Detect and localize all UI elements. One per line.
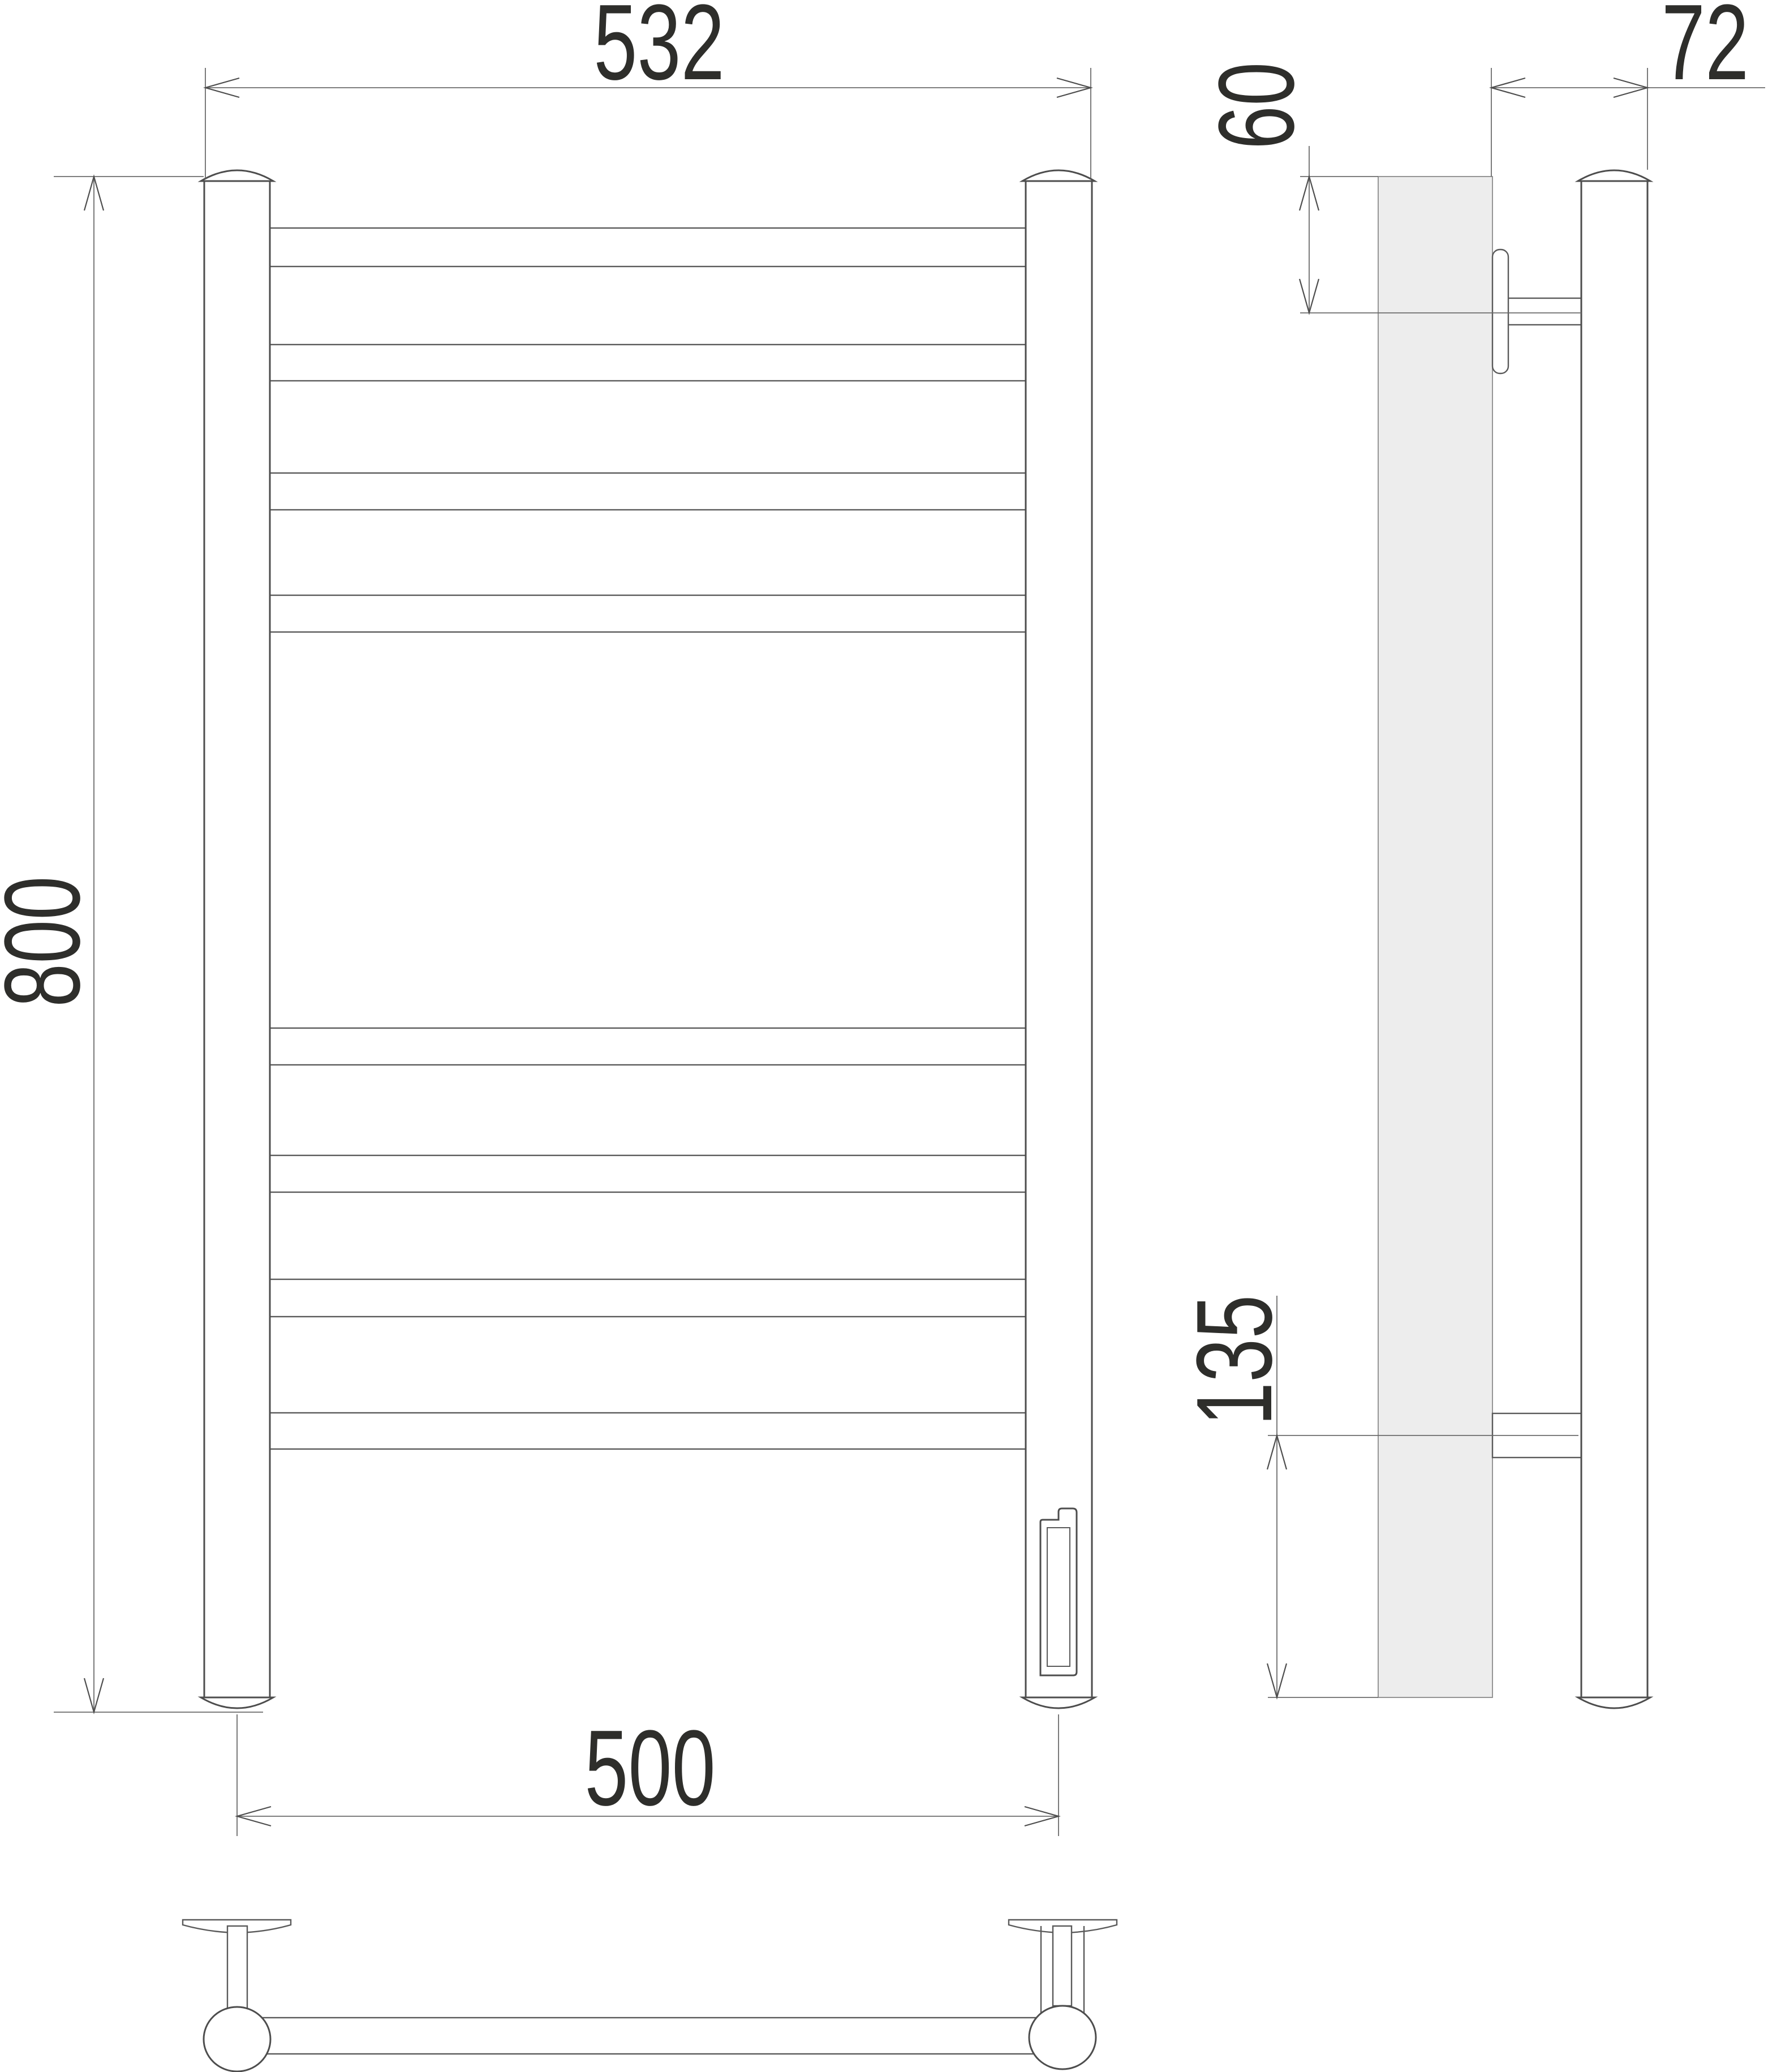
- rung: [268, 1413, 1027, 1449]
- right-post-bottom-cap: [1022, 1697, 1095, 1708]
- rung: [268, 228, 1027, 266]
- rung: [268, 345, 1027, 381]
- dim-overall-width-label: 532: [593, 0, 724, 102]
- dimension-depth: 72: [1491, 0, 1765, 177]
- dimension-bottom-bracket-offset: 135: [1175, 1295, 1578, 1697]
- dim-overall-height-label: 800: [0, 876, 102, 1007]
- rung: [268, 595, 1027, 632]
- bottom-view: [183, 1920, 1117, 2071]
- dim-mounting-width-label: 500: [584, 1708, 715, 1828]
- rung: [268, 473, 1027, 510]
- side-post: [1581, 181, 1647, 1697]
- upper-bracket-stem: [1507, 298, 1581, 325]
- dimension-overall-width: 532: [205, 0, 1091, 178]
- bottom-rung-bar: [260, 2018, 1035, 2054]
- dim-bottom-bracket-offset-label: 135: [1175, 1295, 1294, 1426]
- left-bracket-stem: [227, 1926, 247, 2009]
- rung: [268, 1028, 1027, 1065]
- dimension-mounting-width: 500: [237, 1708, 1059, 1836]
- dim-depth-label: 72: [1662, 0, 1749, 102]
- drawing-sheet: 532 800 500 72 60: [0, 0, 1781, 2072]
- left-post-bottom-cap: [201, 1697, 273, 1708]
- right-post-section: [1029, 2006, 1096, 2069]
- side-view: [1378, 170, 1650, 1708]
- left-post-top-cap: [201, 170, 273, 181]
- dim-top-bracket-offset-label: 60: [1197, 62, 1317, 149]
- wall-section: [1378, 177, 1492, 1697]
- right-bracket-stem: [1053, 1926, 1072, 2006]
- right-post: [1026, 181, 1092, 1697]
- left-post: [204, 181, 270, 1697]
- front-rungs: [268, 228, 1027, 1449]
- side-post-bottom-cap: [1578, 1697, 1650, 1708]
- right-post-top-cap: [1022, 170, 1095, 181]
- left-post-section: [204, 2007, 270, 2071]
- towel-rail-technical-drawing: 532 800 500 72 60: [0, 0, 1781, 2072]
- rung: [268, 1279, 1027, 1317]
- front-view: [201, 170, 1095, 1708]
- rung: [268, 1155, 1027, 1192]
- side-post-top-cap: [1578, 170, 1650, 181]
- upper-bracket-plate: [1492, 250, 1508, 373]
